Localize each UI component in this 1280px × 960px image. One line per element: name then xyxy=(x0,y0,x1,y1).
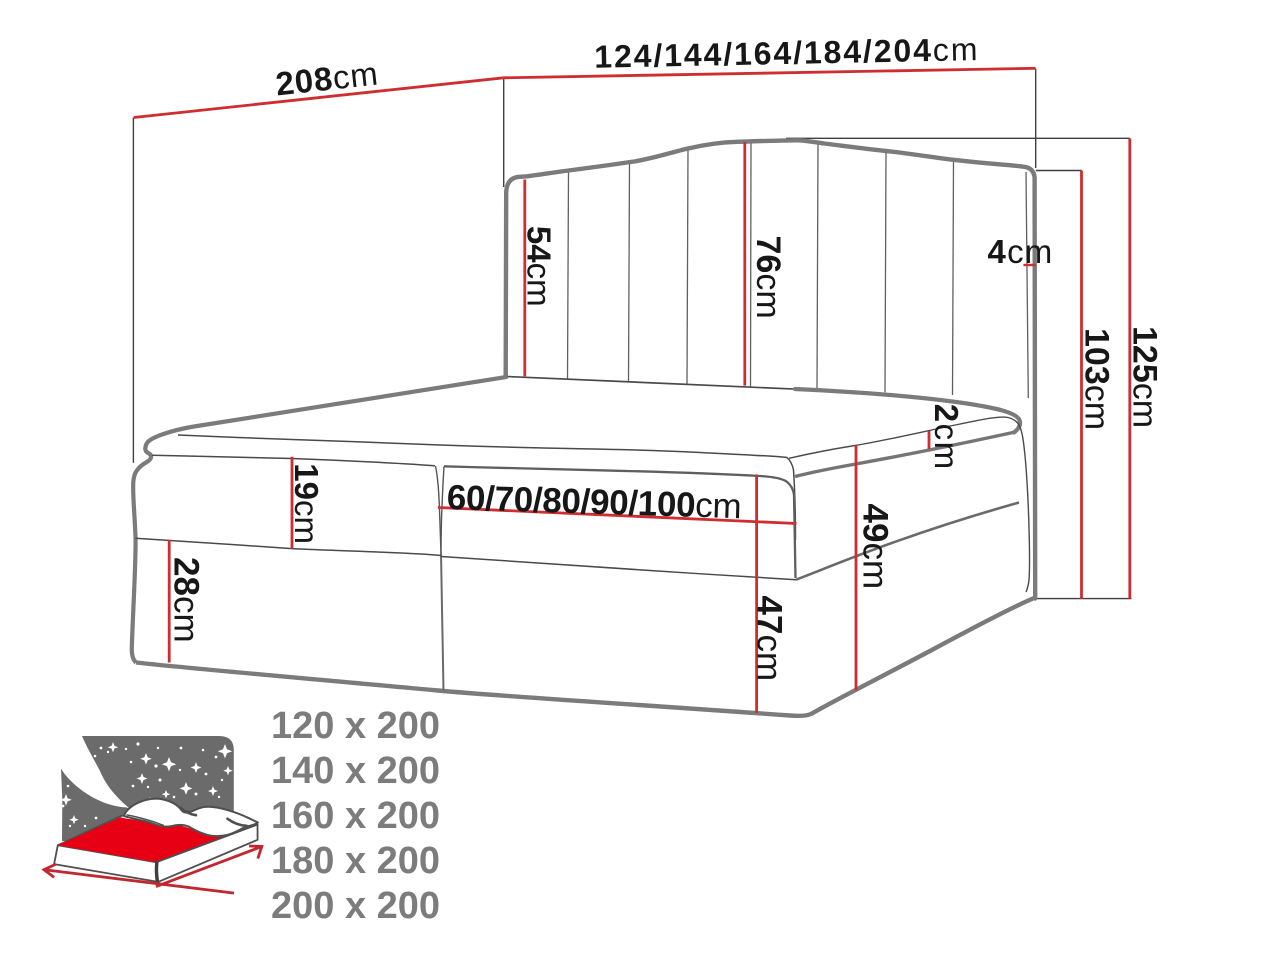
svg-text:54cm: 54cm xyxy=(521,226,558,307)
svg-text:103cm: 103cm xyxy=(1078,328,1116,430)
svg-text:180 x 200: 180 x 200 xyxy=(271,840,440,882)
svg-text:120 x 200: 120 x 200 xyxy=(271,705,440,747)
svg-text:200 x 200: 200 x 200 xyxy=(271,885,440,927)
svg-text:19cm: 19cm xyxy=(288,463,325,544)
svg-text:2cm: 2cm xyxy=(928,404,965,471)
svg-text:140 x 200: 140 x 200 xyxy=(271,750,440,792)
svg-text:49cm: 49cm xyxy=(856,504,895,590)
svg-text:160 x 200: 160 x 200 xyxy=(271,795,440,837)
svg-text:28cm: 28cm xyxy=(167,557,206,643)
svg-text:125cm: 125cm xyxy=(1126,326,1164,428)
svg-text:47cm: 47cm xyxy=(750,596,789,682)
svg-text:76cm: 76cm xyxy=(749,236,787,319)
svg-text:4cm: 4cm xyxy=(988,233,1054,270)
